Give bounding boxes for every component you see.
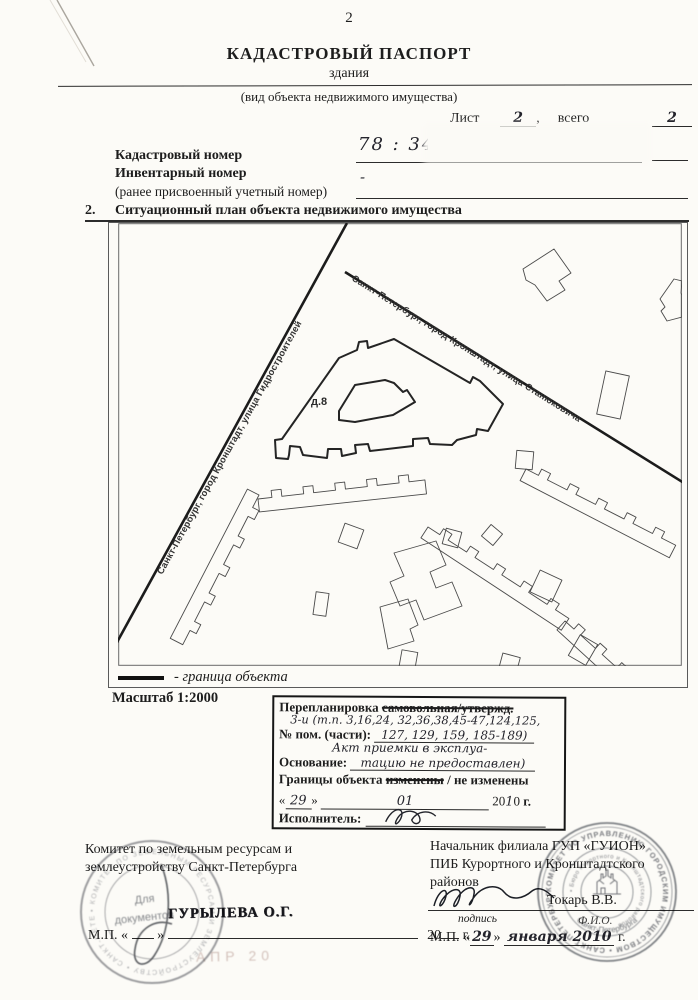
right-round-stamp: КОМИТЕТ ПО УПРАВЛЕНИЮ ГОРОДСКИМ ИМУЩЕСТВ…	[535, 820, 698, 970]
street-label-hydrostroiteley: Санкт-Петербург, город Кронштадт, улица …	[155, 319, 303, 576]
sign-caption: подпись	[458, 913, 497, 925]
building-row-southwest	[257, 473, 426, 513]
inventory-note: (ранее присвоенный учетный номер)	[115, 184, 327, 200]
document-subtitle: здания	[0, 66, 698, 82]
left-stamp-center-line2: документов	[114, 909, 175, 927]
building-cluster-center	[390, 541, 462, 620]
basis-handwritten-overflow: Акт приемки в эксплуа-	[332, 741, 487, 756]
document-title: КАДАСТРОВЫЙ ПАСПОРТ	[0, 44, 698, 64]
cadastral-number-label: Кадастровый номер	[115, 148, 242, 164]
scale-label: Масштаб 1:2000	[112, 690, 218, 707]
basis-value: тацию не предоставлен)	[350, 756, 535, 772]
executor-label: Исполнитель:	[279, 810, 362, 826]
year-suffix: г.	[523, 794, 531, 809]
right-mp-prefix: М.П. «	[430, 930, 470, 945]
inventory-number-value: -	[360, 168, 365, 186]
right-stamp-outer-ring	[538, 823, 676, 961]
right-date-day: 29	[470, 929, 493, 946]
building-row-along-street	[520, 463, 679, 558]
subtitle-note: (вид объекта недвижимого имущества)	[0, 89, 698, 105]
main-building-outline	[275, 339, 503, 459]
year-prefix: 20	[492, 793, 505, 808]
building-row-corner	[556, 616, 659, 666]
building-number-label: д.8	[311, 396, 327, 408]
inventory-underline	[356, 198, 688, 199]
inventory-number-label: Инвентарный номер	[115, 166, 247, 182]
legend-row: - граница объекта	[118, 669, 288, 686]
basis-line: Основание: тацию не предоставлен)	[279, 754, 535, 771]
executor-signature-blank	[365, 810, 545, 828]
building-wing-west	[170, 489, 265, 648]
quote-close: »	[311, 792, 318, 807]
right-stamp-emblem	[593, 870, 621, 894]
plan-inner-border	[119, 224, 682, 666]
executor-line: Исполнитель:	[279, 809, 546, 827]
header-rule	[58, 84, 692, 87]
building-northeast	[523, 249, 571, 301]
sheet-number-value: 2	[500, 110, 536, 127]
section-number: 2.	[85, 203, 96, 219]
borders-prefix: Границы объекта	[279, 771, 383, 787]
executor-signature	[383, 806, 453, 828]
basis-label: Основание:	[279, 754, 347, 769]
year-hand-digit: 1	[505, 794, 513, 809]
cadastral-underline-end	[652, 160, 688, 161]
replanning-stamp-box: Перепланировка самовольная/утвержд. 3-и …	[272, 695, 567, 831]
legend-boundary-line-sample	[118, 676, 164, 680]
borders-line: Границы объекта изменены / не изменены	[279, 771, 529, 788]
rooms-label: № пом. (части):	[279, 726, 371, 741]
building-east-edge	[660, 279, 682, 321]
right-quote-close: »	[494, 930, 501, 945]
situational-plan-map: Санкт-Петербург, город Кронштадт, улица …	[118, 223, 682, 666]
legend-label: - граница объекта	[174, 669, 288, 685]
borders-struck: изменены	[386, 772, 444, 787]
neighbour-buildings	[170, 249, 682, 666]
redaction-blur	[428, 128, 646, 159]
building-row-southeast	[420, 521, 572, 630]
year-tail: 0	[514, 793, 521, 808]
sheet-comma: ,	[536, 111, 540, 127]
building-cluster-lower	[380, 599, 418, 649]
page-number: 2	[0, 10, 698, 27]
left-round-stamp: • КОМИТЕТ ПО ЗЕМЕЛЬНЫМ РЕСУРСАМ И ЗЕМЛЕУ…	[76, 836, 232, 992]
left-stamp-center-line1: Для	[134, 893, 155, 907]
street-label-stanyukovicha: Санкт-Петербург, город Кронштадт, улица …	[350, 273, 583, 424]
building-tower	[515, 450, 534, 469]
rooms-handwritten-overflow: 3-и (т.п. 3,16,24, 32,36,38,45-47,124,12…	[290, 712, 540, 727]
scanned-document-page: 2 КАДАСТРОВЫЙ ПАСПОРТ здания (вид объект…	[0, 0, 698, 1000]
cadastral-underline	[356, 162, 642, 163]
date-day-value: 29	[285, 793, 311, 809]
total-sheets-value: 2	[652, 110, 692, 127]
section-title: Ситуационный план объекта недвижимого им…	[115, 203, 462, 219]
borders-rest: / не изменены	[447, 772, 529, 787]
